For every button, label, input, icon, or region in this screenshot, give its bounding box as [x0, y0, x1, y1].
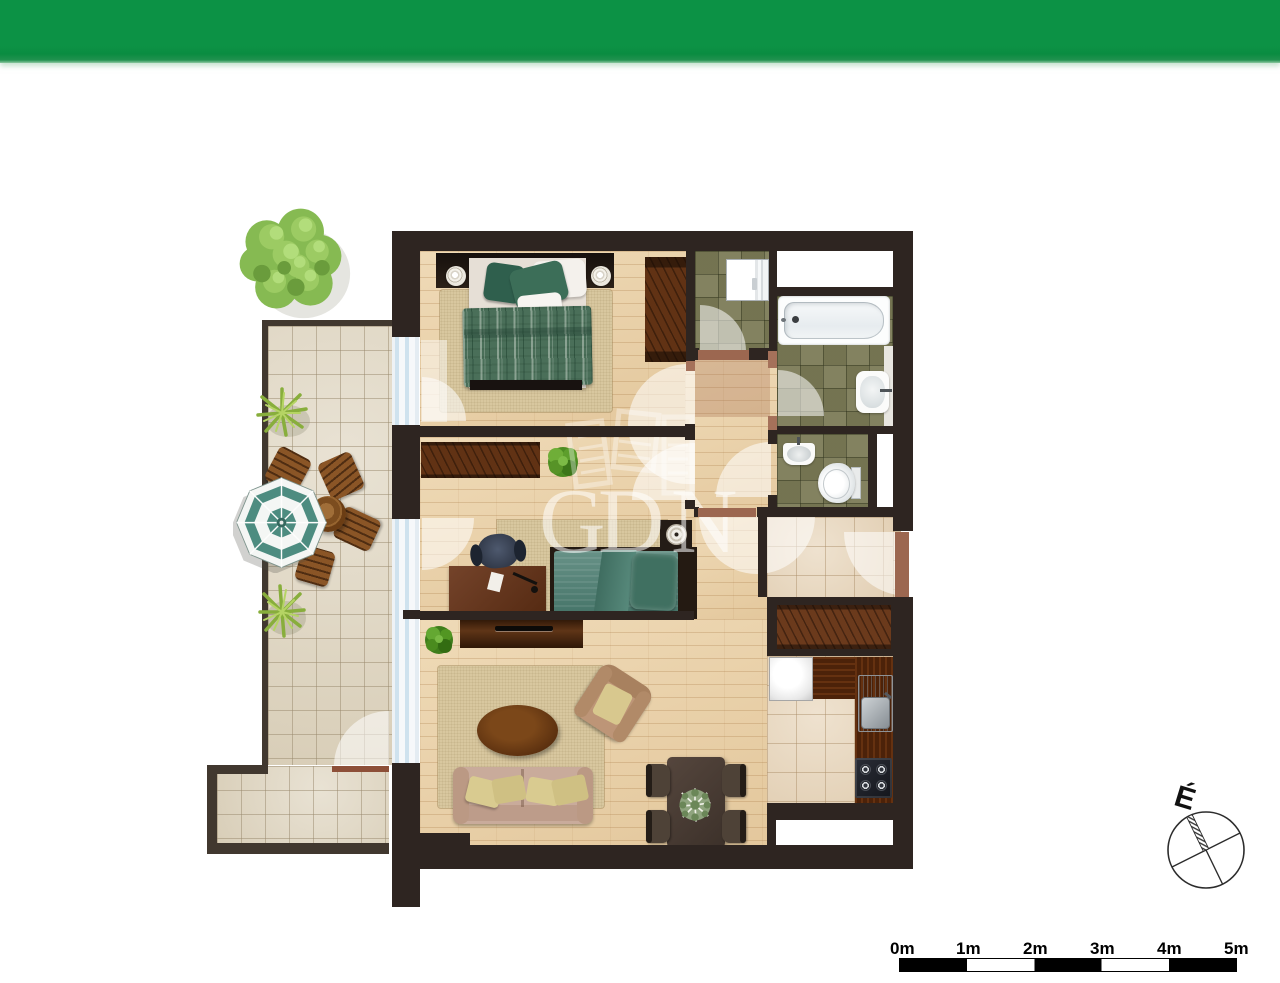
svg-text:É: É — [1171, 779, 1200, 817]
